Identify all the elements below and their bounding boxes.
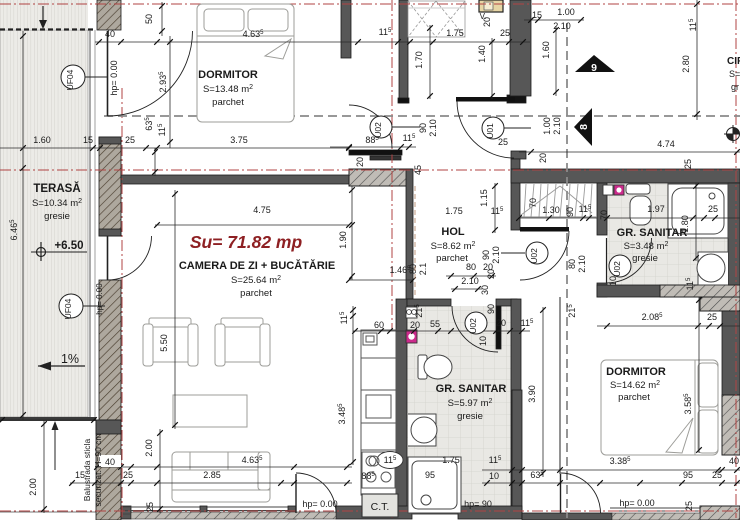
svg-text:25: 25	[683, 159, 693, 169]
svg-text:hp= 0.00: hp= 0.00	[95, 283, 104, 315]
svg-text:15: 15	[83, 135, 93, 145]
svg-text:S=: S=	[729, 69, 740, 79]
svg-text:40: 40	[729, 456, 739, 466]
svg-text:C.T.: C.T.	[371, 501, 390, 513]
svg-text:25: 25	[707, 312, 717, 322]
svg-text:+6.50: +6.50	[54, 240, 83, 252]
svg-text:90: 90	[481, 250, 491, 260]
svg-text:GR. SANITAR: GR. SANITAR	[436, 383, 507, 395]
svg-text:45: 45	[413, 165, 423, 175]
svg-text:V.: V.	[480, 12, 487, 21]
svg-text:3.75: 3.75	[230, 135, 248, 145]
svg-text:25: 25	[684, 501, 694, 511]
svg-text:1.75: 1.75	[442, 455, 460, 465]
svg-text:1.60: 1.60	[33, 135, 51, 145]
svg-text:20: 20	[410, 320, 420, 330]
svg-text:25: 25	[498, 137, 508, 147]
svg-text:80: 80	[567, 259, 577, 269]
svg-text:gresie: gresie	[457, 411, 483, 422]
svg-text:10: 10	[489, 471, 499, 481]
svg-text:1.70: 1.70	[414, 51, 424, 69]
svg-text:hp= 90: hp= 90	[464, 499, 492, 509]
svg-text:1.97: 1.97	[647, 204, 665, 214]
svg-text:55: 55	[430, 319, 440, 329]
svg-text:25: 25	[145, 502, 155, 512]
svg-text:U02: U02	[468, 318, 478, 334]
svg-text:2.10: 2.10	[461, 276, 479, 286]
svg-text:95: 95	[425, 470, 435, 480]
svg-text:Balustrada sticla: Balustrada sticla	[82, 439, 92, 502]
svg-text:70: 70	[599, 210, 609, 220]
svg-text:90: 90	[565, 207, 575, 217]
svg-text:DORMITOR: DORMITOR	[198, 69, 258, 81]
svg-text:25: 25	[708, 204, 718, 214]
svg-text:UF04: UF04	[63, 298, 73, 319]
svg-text:parchet: parchet	[240, 288, 272, 299]
svg-text:1.00: 1.00	[557, 7, 575, 17]
svg-text:40: 40	[105, 457, 115, 467]
svg-text:1.40: 1.40	[477, 45, 487, 63]
svg-text:Su= 71.82 mp: Su= 71.82 mp	[190, 232, 303, 252]
svg-text:4.75: 4.75	[253, 205, 271, 215]
svg-text:parchet: parchet	[618, 392, 650, 403]
svg-text:gr: gr	[731, 82, 739, 92]
svg-text:GR. SANITAR: GR. SANITAR	[617, 227, 688, 239]
svg-text:1.30: 1.30	[542, 205, 560, 215]
svg-text:parchet: parchet	[436, 253, 468, 264]
svg-text:S=14.62 m2: S=14.62 m2	[610, 380, 660, 391]
svg-text:8: 8	[578, 124, 590, 130]
svg-text:60: 60	[374, 320, 384, 330]
svg-text:securizat. H=90 cm: securizat. H=90 cm	[93, 434, 103, 507]
svg-text:95: 95	[683, 470, 693, 480]
svg-text:S=5.97 m2: S=5.97 m2	[448, 398, 493, 409]
svg-text:parchet: parchet	[212, 97, 244, 108]
svg-text:20: 20	[486, 269, 496, 279]
svg-text:U01: U01	[485, 123, 495, 139]
svg-text:2.85: 2.85	[203, 470, 221, 480]
svg-text:UF04: UF04	[65, 69, 75, 90]
svg-text:1.15: 1.15	[479, 189, 489, 207]
svg-text:40: 40	[105, 29, 115, 39]
svg-text:90: 90	[418, 123, 428, 133]
svg-text:2.00: 2.00	[28, 478, 38, 496]
svg-text:2.10: 2.10	[491, 246, 501, 264]
svg-text:S=8.62 m2: S=8.62 m2	[431, 241, 476, 252]
svg-text:1.90: 1.90	[338, 231, 348, 249]
svg-text:2.10: 2.10	[553, 21, 571, 31]
svg-text:25: 25	[500, 28, 510, 38]
svg-text:10: 10	[478, 336, 488, 346]
svg-text:DORMITOR: DORMITOR	[606, 366, 666, 378]
svg-text:hp= 0.00: hp= 0.00	[302, 499, 337, 509]
svg-text:20: 20	[355, 157, 365, 167]
svg-text:S=3.48 m2: S=3.48 m2	[624, 241, 669, 252]
svg-text:CAMERA DE ZI + BUCĂTĂRIE: CAMERA DE ZI + BUCĂTĂRIE	[179, 259, 335, 272]
svg-text:1.75: 1.75	[445, 206, 463, 216]
svg-text:2.80: 2.80	[681, 55, 691, 73]
svg-text:20: 20	[538, 153, 548, 163]
svg-text:90: 90	[486, 304, 496, 314]
svg-text:CIR: CIR	[727, 56, 740, 67]
svg-text:hp= 0.00: hp= 0.00	[619, 498, 654, 508]
svg-text:20: 20	[496, 318, 506, 328]
svg-text:HOL: HOL	[441, 226, 465, 238]
svg-text:4.74: 4.74	[657, 139, 675, 149]
svg-text:2.10: 2.10	[428, 119, 438, 137]
svg-text:25: 25	[712, 470, 722, 480]
svg-text:TERASĂ: TERASĂ	[33, 182, 80, 195]
svg-text:30: 30	[480, 285, 490, 295]
svg-text:2.00: 2.00	[144, 439, 154, 457]
svg-text:15: 15	[532, 10, 542, 20]
svg-text:U02: U02	[612, 261, 622, 277]
svg-text:9: 9	[591, 62, 597, 74]
svg-text:U02: U02	[373, 122, 383, 138]
svg-text:2.10: 2.10	[577, 255, 587, 273]
svg-text:70: 70	[528, 198, 538, 208]
svg-text:1%: 1%	[61, 352, 79, 366]
svg-text:U02: U02	[529, 248, 539, 264]
svg-text:2.10: 2.10	[552, 117, 562, 135]
svg-text:25: 25	[123, 470, 133, 480]
svg-text:3.90: 3.90	[527, 385, 537, 403]
svg-text:2.1: 2.1	[418, 263, 428, 276]
svg-text:50: 50	[144, 14, 154, 24]
svg-text:hp= 0.00: hp= 0.00	[109, 60, 119, 95]
svg-text:gresie: gresie	[632, 253, 658, 264]
svg-text:S=25.64 m2: S=25.64 m2	[231, 275, 281, 286]
svg-text:1.60: 1.60	[541, 41, 551, 59]
svg-text:S=13.48 m2: S=13.48 m2	[203, 84, 253, 95]
svg-text:25: 25	[125, 135, 135, 145]
svg-text:S=10.34 m2: S=10.34 m2	[32, 198, 82, 209]
svg-text:gresie: gresie	[44, 211, 70, 222]
svg-text:5.50: 5.50	[159, 334, 169, 352]
svg-text:1.00: 1.00	[542, 117, 552, 135]
svg-text:80: 80	[408, 264, 418, 274]
svg-text:1.75: 1.75	[446, 28, 464, 38]
